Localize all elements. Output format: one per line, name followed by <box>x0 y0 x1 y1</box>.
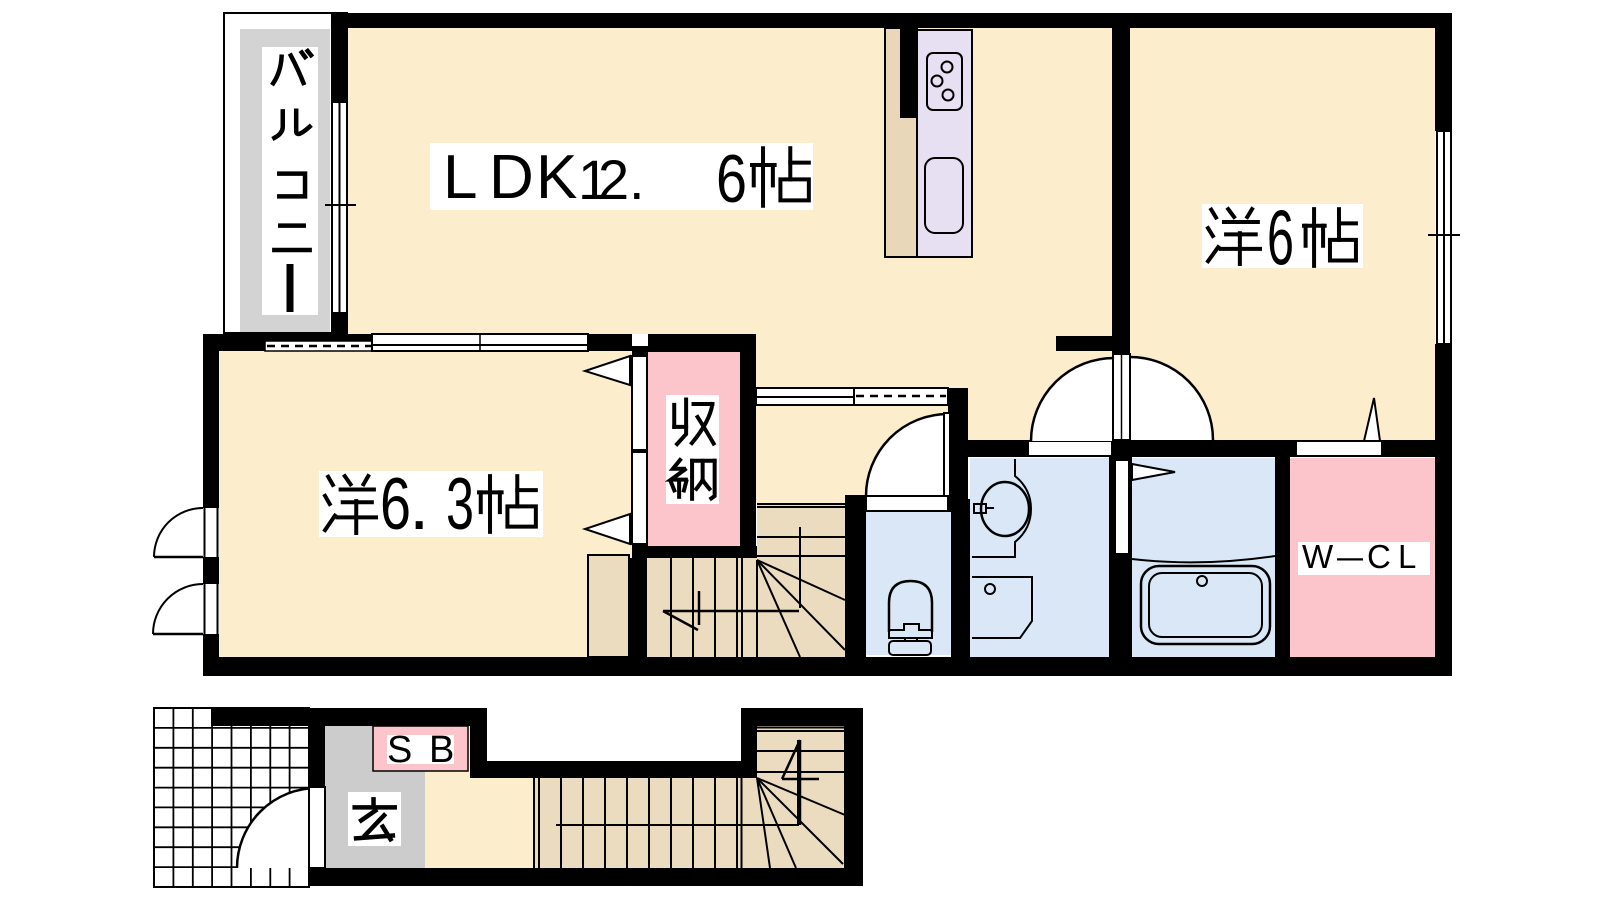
svg-text:2: 2 <box>598 148 629 211</box>
svg-text:D: D <box>489 143 534 212</box>
svg-text:B: B <box>429 729 454 771</box>
svg-text:C: C <box>1367 538 1391 575</box>
svg-text:L: L <box>1398 538 1416 575</box>
svg-text:W: W <box>1302 538 1334 575</box>
svg-text:L: L <box>443 143 477 212</box>
svg-text:K: K <box>536 143 577 212</box>
svg-text:6: 6 <box>380 464 411 545</box>
svg-text:3: 3 <box>446 464 474 545</box>
svg-text:6: 6 <box>1267 193 1294 281</box>
svg-text:.: . <box>409 464 429 545</box>
svg-text:.: . <box>629 148 645 211</box>
svg-text:—: — <box>1337 538 1363 575</box>
svg-text:S: S <box>387 729 412 771</box>
svg-text:6: 6 <box>716 141 747 217</box>
